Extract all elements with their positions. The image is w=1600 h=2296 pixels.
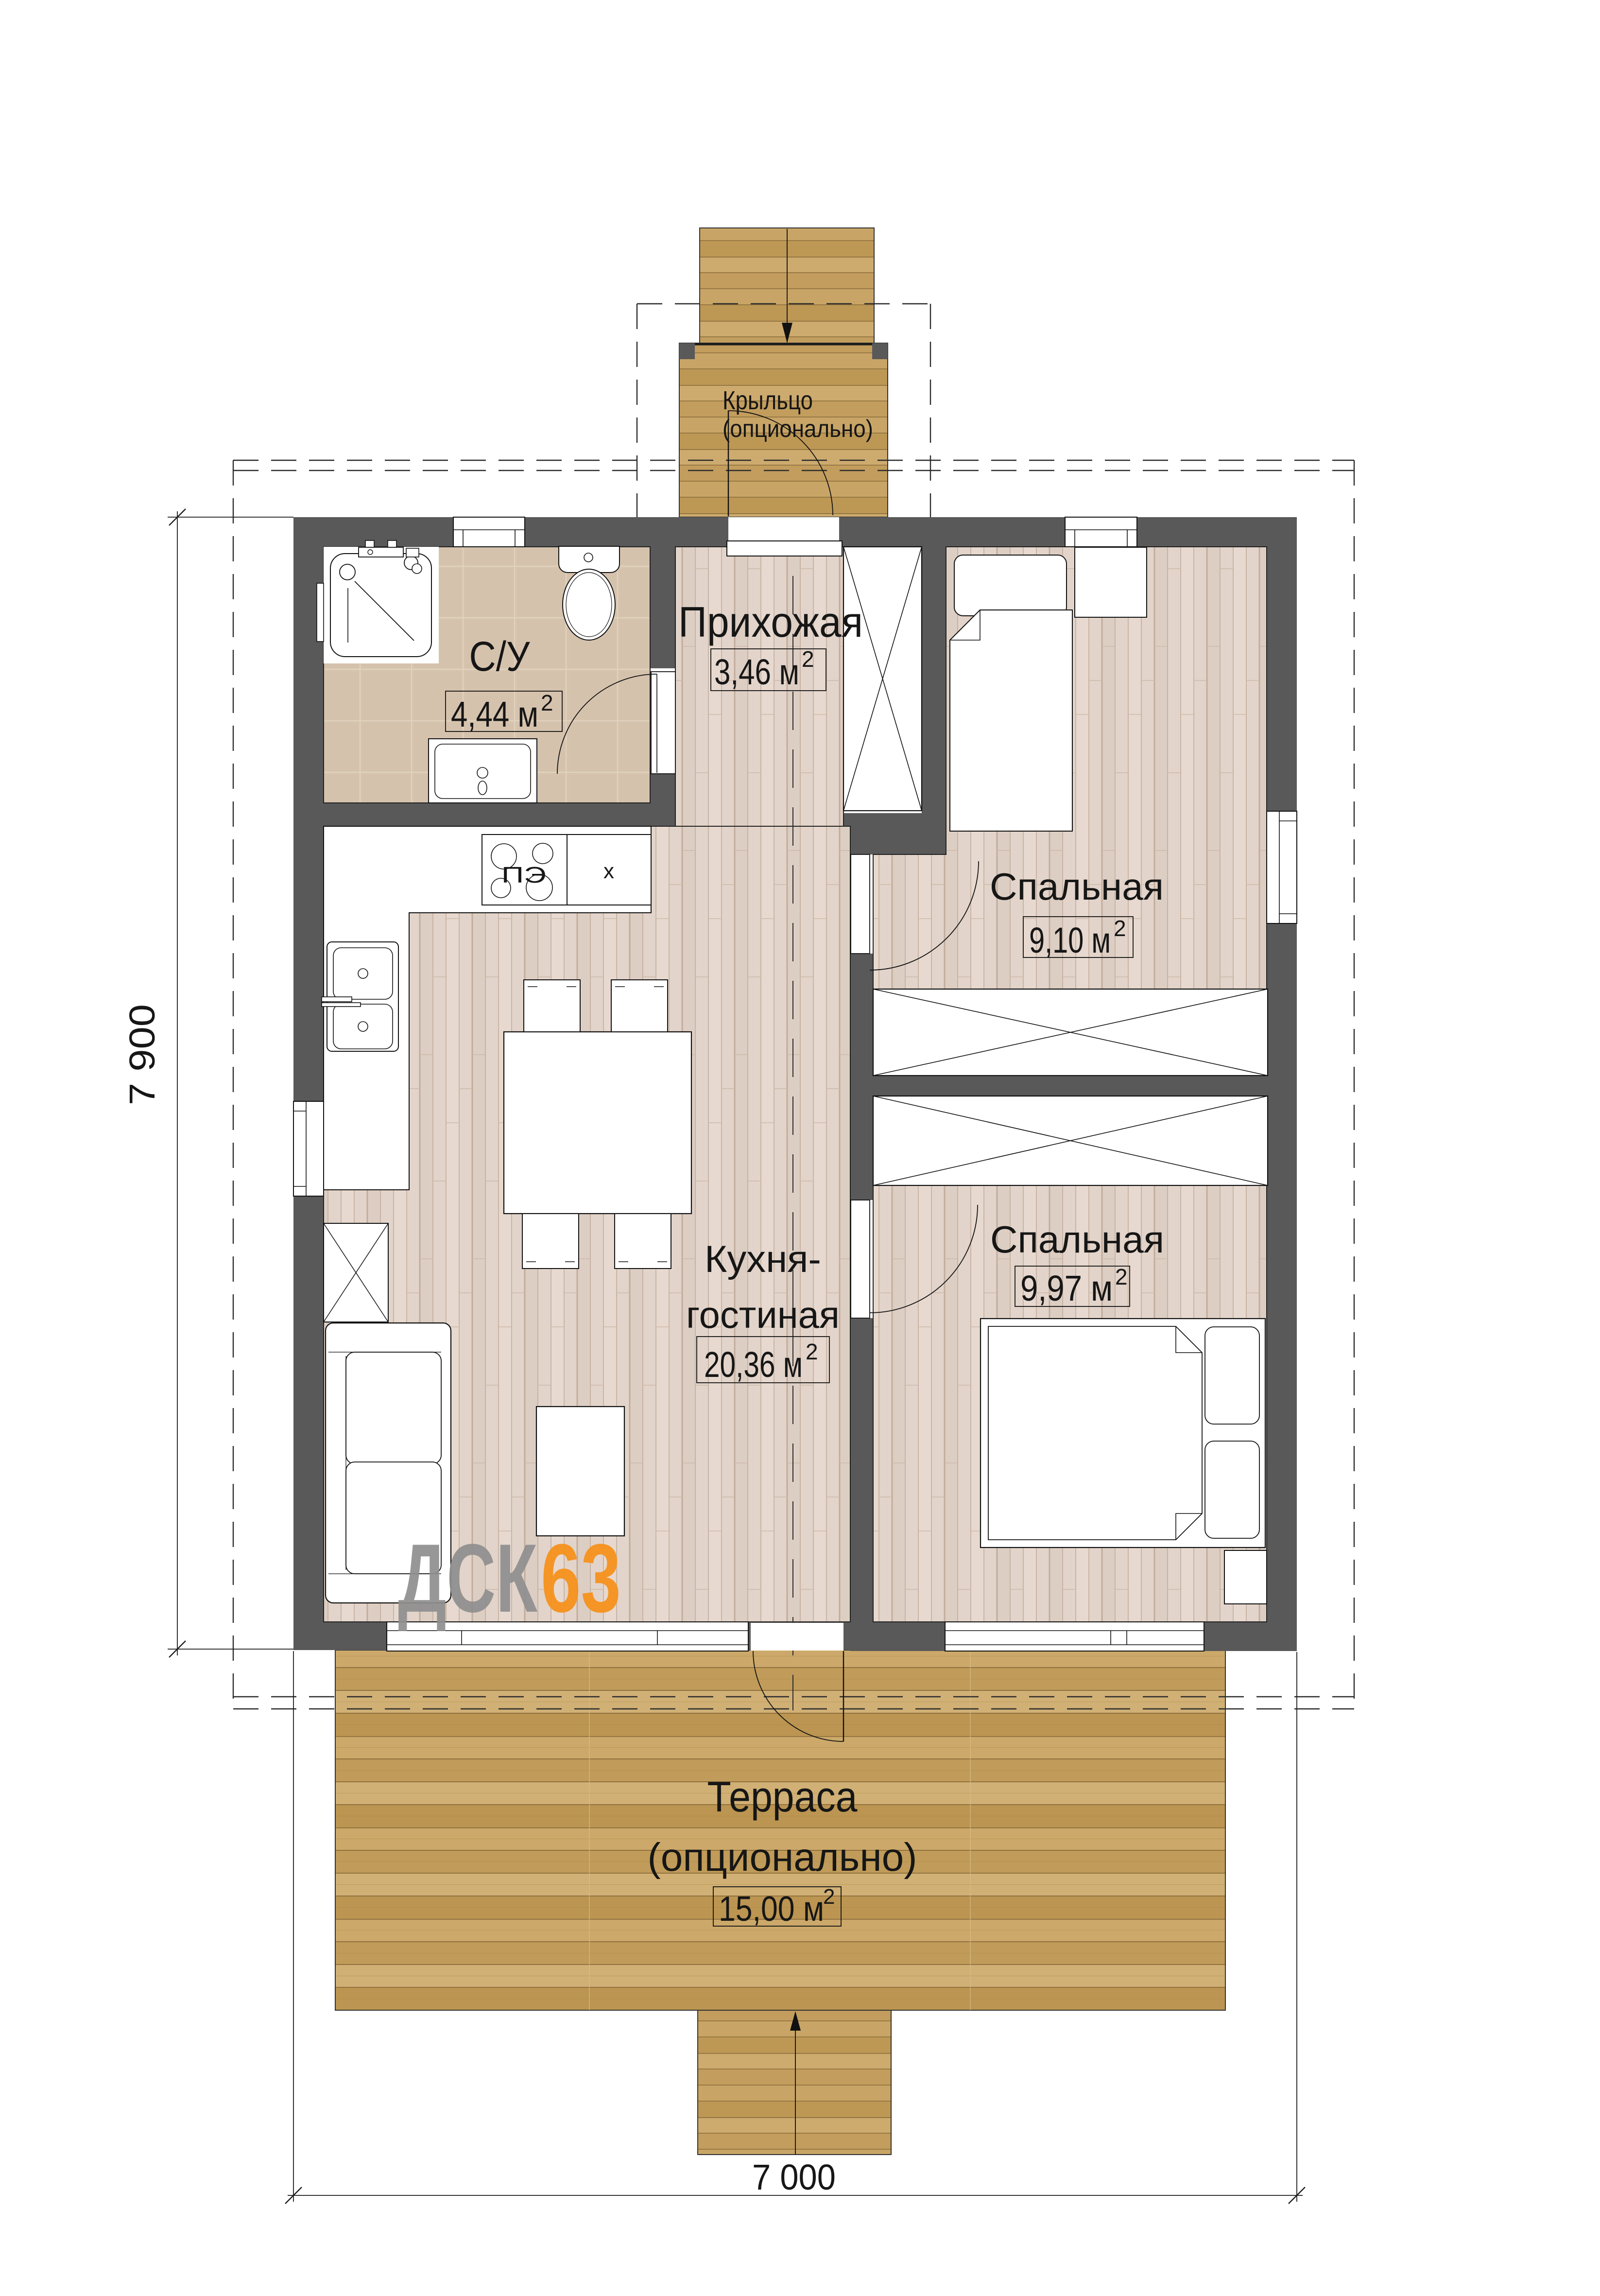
svg-text:(опционально): (опционально) bbox=[723, 415, 873, 442]
svg-text:х: х bbox=[603, 859, 614, 883]
svg-text:Спальная: Спальная bbox=[990, 865, 1164, 908]
svg-text:4,44 м: 4,44 м bbox=[451, 694, 538, 734]
svg-text:2: 2 bbox=[1115, 1264, 1128, 1289]
svg-text:гостиная: гостиная bbox=[686, 1293, 840, 1336]
svg-text:3,46 м: 3,46 м bbox=[714, 652, 799, 692]
svg-text:Прихожая: Прихожая bbox=[678, 598, 863, 646]
svg-text:7 000: 7 000 bbox=[752, 2157, 836, 2197]
svg-text:(опционально): (опционально) bbox=[648, 1835, 917, 1879]
svg-text:ПЭ: ПЭ bbox=[501, 862, 546, 887]
svg-text:ДСК: ДСК bbox=[398, 1524, 538, 1633]
svg-text:2: 2 bbox=[806, 1339, 818, 1364]
svg-text:20,36 м: 20,36 м bbox=[704, 1344, 803, 1385]
svg-text:Терраса: Терраса bbox=[707, 1773, 858, 1821]
svg-text:2: 2 bbox=[823, 1885, 835, 1909]
svg-text:9,97 м: 9,97 м bbox=[1020, 1268, 1113, 1308]
svg-text:Спальная: Спальная bbox=[990, 1218, 1164, 1261]
svg-text:Крыльцо: Крыльцо bbox=[723, 386, 813, 415]
svg-text:2: 2 bbox=[541, 690, 553, 715]
svg-text:9,10 м: 9,10 м bbox=[1029, 920, 1111, 960]
svg-text:Кухня-: Кухня- bbox=[705, 1237, 821, 1280]
svg-text:2: 2 bbox=[802, 646, 814, 672]
svg-text:7 900: 7 900 bbox=[122, 1004, 162, 1105]
svg-text:15,00 м: 15,00 м bbox=[719, 1890, 824, 1929]
svg-text:63: 63 bbox=[541, 1524, 621, 1633]
svg-text:2: 2 bbox=[1114, 916, 1126, 941]
svg-text:С/У: С/У bbox=[469, 633, 531, 680]
